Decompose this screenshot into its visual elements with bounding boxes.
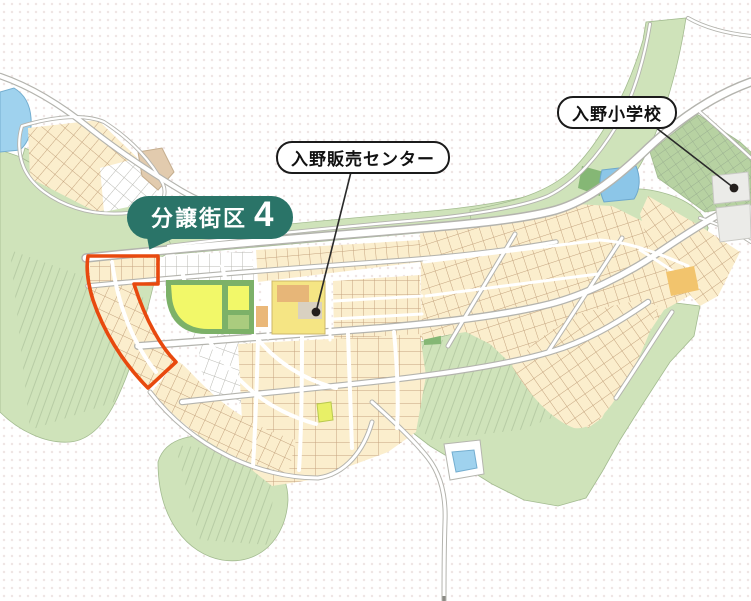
block-4-badge-number: 4 bbox=[254, 195, 273, 235]
park-lawn-small bbox=[228, 286, 249, 310]
site-map-page: 分譲街区 4 入野販売センター 入野小学校 bbox=[0, 0, 751, 601]
school-callout-label: 入野小学校 bbox=[572, 100, 662, 125]
sales-center-marker-dot[interactable] bbox=[312, 308, 321, 317]
pond-top-left bbox=[0, 88, 31, 152]
park bbox=[166, 280, 254, 334]
school-callout[interactable]: 入野小学校 bbox=[557, 96, 677, 129]
yellow-lot-small bbox=[317, 402, 333, 422]
pond-bottom bbox=[444, 440, 484, 480]
sales-center-callout[interactable]: 入野販売センター bbox=[276, 141, 450, 174]
orange-lot-left bbox=[256, 306, 268, 327]
sales-center-roof bbox=[277, 285, 309, 302]
block-4-badge-label: 分譲街区 bbox=[151, 201, 247, 233]
park-green-lower bbox=[228, 315, 249, 329]
block-4-badge[interactable]: 分譲街区 4 bbox=[127, 196, 293, 239]
sales-center-callout-label: 入野販売センター bbox=[291, 145, 435, 170]
school-marker-dot[interactable] bbox=[730, 184, 739, 193]
development-map bbox=[0, 0, 751, 601]
